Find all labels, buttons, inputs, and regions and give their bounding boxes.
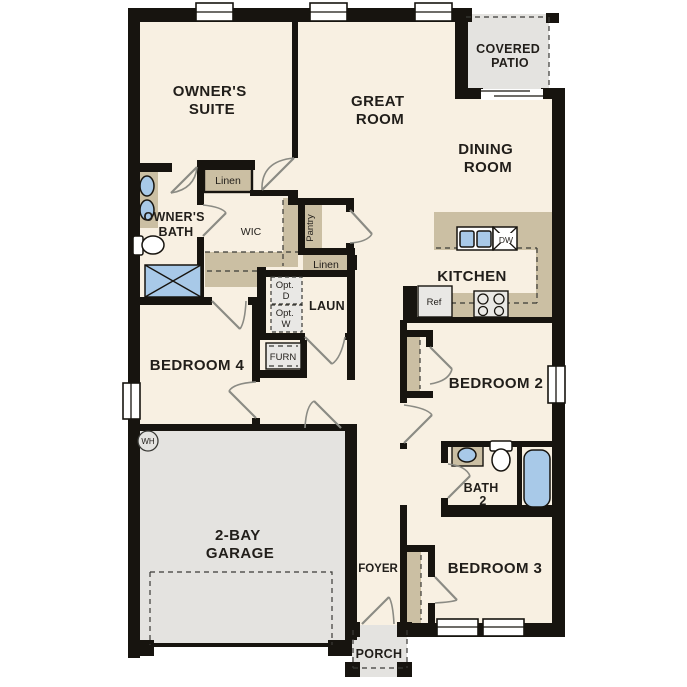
wall-laundry-west (257, 267, 266, 337)
wall-hall-east-b (400, 443, 407, 449)
exterior-below-porch (345, 677, 415, 687)
wall-patio-corner (546, 13, 559, 23)
wall-bedroom4-east-b (252, 418, 260, 424)
label-bedroom4: BEDROOM 4 (150, 357, 245, 374)
label-great-room: GREAT ROOM (351, 93, 409, 128)
bath2-sink (458, 448, 476, 462)
kitchen-sink-basin-2 (477, 231, 491, 247)
exterior-below-garage (128, 656, 352, 687)
label-linen-wic: Linen (215, 175, 241, 187)
label-linen-hall: Linen (313, 259, 339, 271)
wall-laundry-north (260, 270, 355, 277)
label-wic: WIC (241, 226, 262, 238)
porch-post-se (397, 662, 412, 677)
wall-tub-partition (517, 447, 522, 507)
label-water-heater: WH (141, 437, 155, 446)
wall-suite-east (292, 22, 298, 158)
wall-bedroom3-closet-east-a (428, 552, 435, 577)
wall-foyer-east (400, 545, 407, 623)
label-porch: PORCH (356, 647, 403, 661)
wall-pantry-east-a (346, 198, 354, 212)
wall-pantry-west (298, 205, 305, 255)
wall-ref-block (403, 286, 417, 320)
bedroom2-closet-shelf (407, 337, 420, 391)
label-bedroom3: BEDROOM 3 (448, 560, 542, 577)
wall-garage-corner-left (128, 640, 154, 656)
wall-patio-bottom-left (455, 88, 483, 99)
wall-bedroom2-closet-bottom (400, 391, 433, 398)
wall-garage-north (128, 424, 357, 431)
wall-kitchen-south (407, 317, 565, 323)
label-pantry: Pantry (305, 214, 316, 242)
label-laundry: LAUN (309, 299, 345, 313)
label-refrigerator: Ref (427, 297, 442, 308)
wall-patio-bottom-right (541, 88, 565, 99)
wall-garage-east (345, 424, 357, 640)
wall-bedroom2-closet-stub (426, 337, 433, 347)
label-garage: 2-BAY GARAGE (206, 527, 274, 562)
floor-plan: OWNER'S SUITE GREAT ROOM COVERED PATIO D… (0, 0, 687, 687)
wall-bedroom3-closet-east-b (428, 603, 435, 623)
label-furnace: FURN (270, 352, 297, 363)
wall-exterior-left (128, 8, 140, 658)
garage-door-header (150, 643, 330, 647)
exterior-below-bedroom3 (407, 637, 567, 687)
hall-coat-shelf (205, 267, 257, 287)
wall-bath-north-b (197, 160, 255, 170)
wall-bedroom4-north-a (128, 297, 212, 305)
wall-linen-hall-north (298, 248, 355, 255)
wall-bath-north-a (128, 163, 172, 172)
wall-linen-hall-east (350, 255, 357, 270)
wall-patio-left (455, 13, 468, 97)
label-foyer: FOYER (358, 563, 398, 575)
floor-plan-page: OWNER'S SUITE GREAT ROOM COVERED PATIO D… (0, 0, 687, 687)
kitchen-sink-basin-1 (460, 231, 474, 247)
bedroom3-closet-shelf (407, 552, 421, 623)
owners-bath-sink-1 (140, 176, 154, 196)
porch-post-ne (397, 622, 412, 637)
wall-bedroom2-closet-top (400, 330, 433, 337)
wall-laundry-south-b (345, 333, 355, 340)
exterior-garage-apron (150, 647, 330, 659)
label-dishwasher: DW (499, 235, 513, 245)
wic-shelf-bottom (205, 252, 298, 267)
bath2-toilet-bowl (492, 449, 510, 471)
wall-bath-east-a (197, 170, 204, 205)
bath2-tub (524, 450, 550, 507)
wall-laundry-south-a (257, 333, 305, 340)
wall-furnace-south (257, 370, 307, 378)
label-kitchen: KITCHEN (437, 268, 506, 285)
wall-bath2-south (441, 505, 565, 517)
label-dining-room: DINING ROOM (458, 141, 517, 176)
wall-pantry-north (288, 198, 352, 205)
wall-bath2-west-a (441, 447, 448, 463)
wall-hall-east-c (400, 505, 407, 545)
label-bedroom2: BEDROOM 2 (449, 375, 543, 392)
wall-exterior-right (552, 90, 565, 637)
wall-wic-north (250, 190, 298, 196)
porch-post-sw (345, 662, 360, 677)
